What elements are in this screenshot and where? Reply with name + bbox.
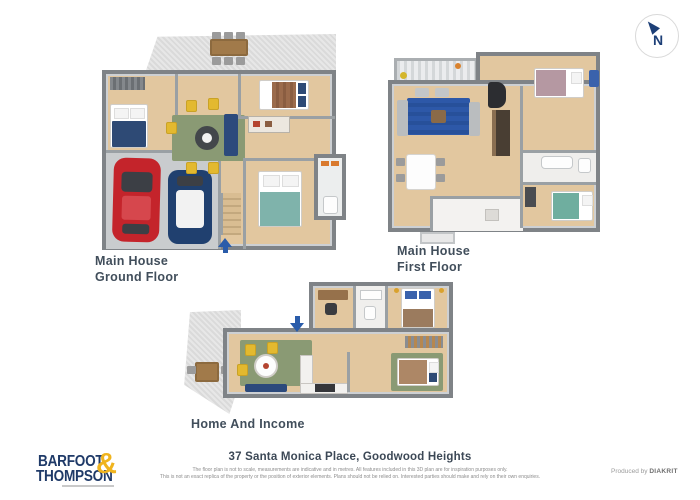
dining-chair (436, 174, 445, 182)
home-and-income-plan (183, 282, 485, 420)
bed (397, 358, 439, 386)
first-floor-label: Main House First Floor (397, 243, 470, 275)
round-table (254, 354, 278, 378)
desk (525, 187, 536, 207)
first-floor-footprint (388, 80, 600, 232)
outdoor-chair (236, 57, 245, 65)
lamp (439, 288, 444, 293)
outdoor-chair (187, 366, 196, 374)
bed (258, 171, 302, 227)
yellow-armchair (208, 98, 219, 110)
north-compass: N (635, 14, 679, 58)
armchair (415, 88, 429, 97)
bed-blanket (536, 70, 566, 96)
dining-chair (396, 174, 405, 182)
towel (331, 161, 339, 166)
outdoor-table (195, 362, 219, 382)
produced-by-text: Produced by (611, 468, 649, 475)
produced-by: Produced by DIAKRIT (611, 468, 678, 475)
yellow-armchair (186, 162, 197, 174)
pillow (429, 373, 437, 382)
coffee-table (431, 110, 446, 123)
armchair (435, 88, 449, 97)
dining-chair (436, 158, 445, 166)
dining-table (406, 154, 436, 190)
pillow (114, 108, 129, 119)
property-address: 37 Santa Monica Place, Goodwood Heights (0, 451, 700, 463)
bathroom (523, 153, 596, 182)
car-windshield (121, 172, 153, 193)
first-floor-label-line1: Main House (397, 243, 470, 259)
disclaimer-line2: This is not an exact replica of the prop… (0, 474, 700, 480)
table-plate (202, 133, 212, 143)
bed-blanket (403, 309, 433, 327)
yellow-armchair (245, 344, 256, 356)
yellow-armchair (166, 122, 177, 134)
logo-tagline (62, 485, 114, 487)
ground-floor-label: Main House Ground Floor (95, 253, 178, 285)
wardrobe (110, 77, 145, 90)
appliance (485, 209, 499, 221)
first-floor-label-line2: First Floor (397, 259, 470, 275)
gray-sofa (397, 100, 408, 136)
table-decor (263, 363, 269, 369)
blue-car (168, 170, 212, 244)
toilet (578, 158, 591, 173)
bed (259, 80, 309, 110)
ground-floor-label-line2: Ground Floor (95, 269, 178, 285)
bathtub (541, 156, 573, 169)
bathroom (356, 286, 385, 330)
car-roof (121, 196, 151, 221)
ground-floor-plan (98, 30, 348, 254)
toilet (364, 306, 376, 320)
bedroom (523, 185, 596, 228)
pillow (263, 175, 280, 187)
wardrobe (405, 336, 443, 348)
red-car (112, 157, 161, 242)
bedroom-1 (106, 74, 178, 153)
income-upper-rooms (309, 282, 453, 334)
pillow (582, 195, 593, 206)
floor-plan-flyer: { "compass": { "letter": "N" }, "plans":… (0, 0, 700, 500)
car-rear-window (122, 224, 149, 235)
gray-sofa (469, 102, 480, 136)
bedroom-2 (238, 74, 335, 119)
car-windshield (177, 176, 203, 186)
outdoor-chair (224, 57, 233, 65)
kitchen-counter (492, 110, 510, 156)
kitchen-item (253, 121, 260, 127)
entry-arrow-stem (223, 246, 228, 253)
interior-wall (385, 286, 388, 330)
bed-blanket (260, 192, 300, 226)
yellow-armchair (186, 100, 197, 112)
producer-name: DIAKRIT (649, 468, 677, 475)
stove (315, 384, 335, 392)
bed (110, 104, 148, 148)
lamp (455, 63, 461, 69)
first-floor-plan (388, 52, 614, 246)
blue-chest (589, 70, 599, 87)
kitchen-counter (248, 116, 290, 133)
entry-arrow-icon (290, 323, 304, 332)
income-main-rooms (223, 328, 453, 398)
pillow (130, 108, 145, 119)
yellow-armchair (237, 364, 248, 376)
kitchen-item (265, 121, 272, 127)
pillow (429, 362, 439, 373)
vanity (360, 290, 382, 300)
bed (401, 288, 435, 328)
navy-bench (245, 384, 287, 392)
ground-floor-footprint (102, 70, 336, 250)
outdoor-chair (212, 57, 221, 65)
laundry (430, 196, 523, 231)
dining-chair (396, 158, 405, 166)
bed (551, 191, 593, 221)
round-dining-table (195, 126, 219, 150)
pillow (282, 175, 299, 187)
ground-floor-label-line1: Main House (95, 253, 178, 269)
plant (400, 72, 407, 79)
car-roof (176, 190, 204, 228)
towel (321, 161, 329, 166)
pillow (571, 72, 582, 84)
yellow-armchair (208, 162, 219, 174)
bed-blanket (112, 121, 146, 147)
bathroom (314, 154, 346, 220)
pillow (419, 291, 431, 299)
pillow (405, 291, 417, 299)
toilet (323, 196, 338, 214)
desk (318, 290, 348, 300)
bed-blanket (553, 193, 579, 219)
outdoor-table (210, 39, 248, 56)
bed (534, 68, 584, 98)
pillow (298, 83, 306, 94)
lamp (394, 288, 399, 293)
interior-wall (347, 352, 350, 392)
disclaimer-line1: The floor plan is not to scale, measurem… (0, 467, 700, 473)
piano (488, 82, 506, 108)
home-and-income-label: Home And Income (191, 416, 305, 432)
entry-arrow-stem (295, 316, 300, 323)
compass-n-label: N (653, 32, 663, 48)
home-and-income-label-line1: Home And Income (191, 416, 305, 432)
stairs (220, 193, 241, 235)
bed-blanket (272, 82, 296, 108)
pillow (298, 96, 306, 107)
navy-sofa (224, 114, 238, 156)
yellow-armchair (267, 342, 278, 354)
bed-blanket (399, 360, 427, 384)
office-chair (325, 303, 337, 315)
